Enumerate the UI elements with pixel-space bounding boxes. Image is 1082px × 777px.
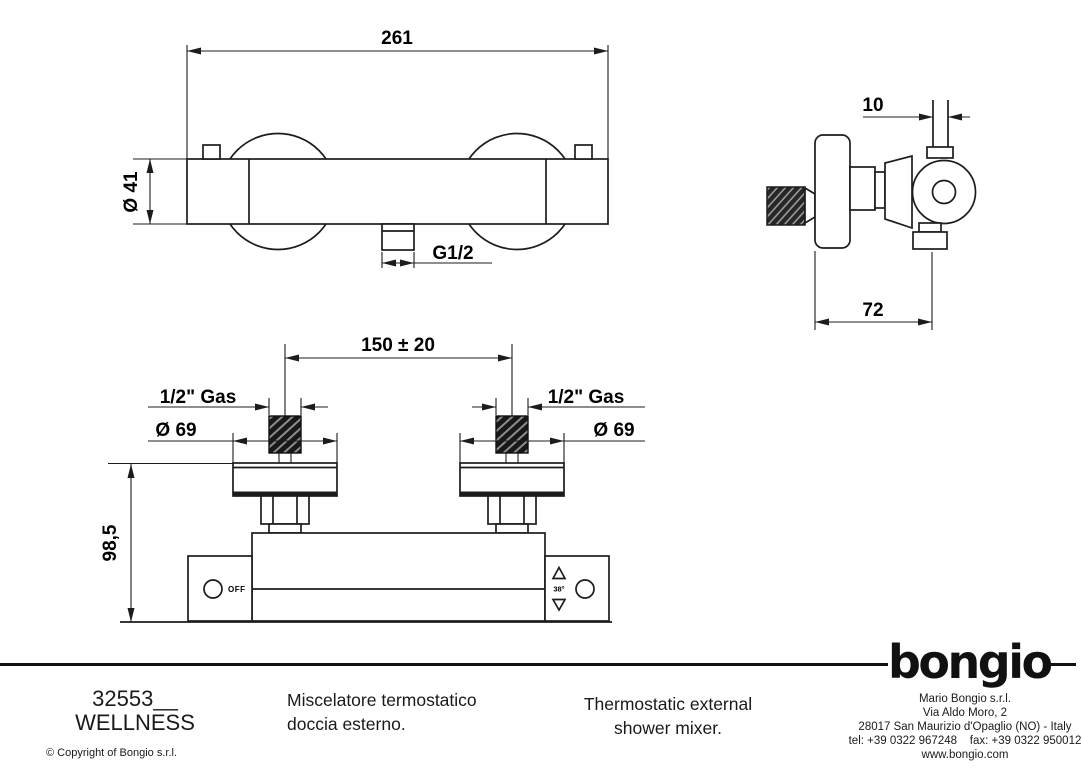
bongio-logo: bongio	[888, 638, 1050, 686]
company-street: Via Aldo Moro, 2	[828, 706, 1082, 720]
dim-69-right: Ø 69	[460, 420, 645, 463]
front-view: 261 Ø 41 G1/2	[121, 28, 608, 268]
dim-72-label: 72	[862, 300, 883, 321]
installation-view: 150 ± 20 1/2" Gas 1/2" Gas	[100, 335, 645, 622]
dim-985-label: 98,5	[100, 524, 121, 561]
side-outlet	[913, 232, 947, 249]
wall-plate-side	[815, 135, 850, 248]
article-code: 32553__	[55, 687, 215, 711]
series-name: WELLNESS	[55, 711, 215, 735]
dim-69-right-label: Ø 69	[593, 420, 634, 441]
thread-inlet-left	[269, 416, 301, 453]
dim-10: 10	[862, 95, 970, 121]
description-italian: Miscelatore termostatico doccia esterno.	[287, 688, 477, 736]
company-website: www.bongio.com	[828, 748, 1082, 762]
escutcheon-right	[460, 463, 564, 497]
escutcheon-left	[233, 463, 337, 497]
titleblock-divider-left	[0, 663, 888, 666]
mixer-bar	[187, 159, 608, 224]
dim-72: 72	[815, 251, 932, 330]
company-name: Mario Bongio s.r.l.	[828, 692, 1082, 706]
temp-handle-block: 38°	[545, 556, 609, 621]
knurled-handle	[767, 187, 805, 225]
description-english: Thermostatic external shower mixer.	[582, 692, 754, 740]
dim-150: 150 ± 20	[285, 335, 512, 362]
bottom-outlet	[382, 224, 414, 250]
dim-diameter-41: Ø 41	[121, 159, 189, 224]
dim-261-label: 261	[381, 28, 413, 49]
copyright-note: © Copyright of Bongio s.r.l.	[46, 747, 177, 759]
thread-inlet-right	[496, 416, 528, 453]
mixer-body-top	[252, 533, 545, 621]
off-handle-block: OFF	[188, 556, 252, 621]
mount-tab-right	[575, 145, 592, 159]
dim-10-label: 10	[862, 95, 883, 116]
body-cone	[885, 156, 912, 228]
company-phone: tel: +39 0322 967248 fax: +39 0322 95001…	[828, 734, 1082, 748]
datasheet-page: 261 Ø 41 G1/2	[0, 0, 1082, 777]
handle-neck	[805, 188, 815, 223]
article-block: 32553__ WELLNESS	[55, 687, 215, 735]
dim-41-label: Ø 41	[121, 171, 142, 213]
dim-69-left-label: Ø 69	[155, 420, 196, 441]
dim-gas-right: 1/2" Gas	[472, 387, 645, 415]
company-city: 28017 San Maurizio d'Opaglio (NO) - Ital…	[828, 720, 1082, 734]
dim-gas-right-label: 1/2" Gas	[548, 387, 625, 408]
dim-261: 261	[187, 28, 608, 159]
dim-150-label: 150 ± 20	[361, 335, 435, 356]
dim-69-left: Ø 69	[148, 420, 337, 463]
dim-g12-label: G1/2	[432, 243, 473, 264]
company-address: Mario Bongio s.r.l. Via Aldo Moro, 2 280…	[828, 692, 1082, 762]
temp-label: 38°	[553, 585, 564, 594]
off-label: OFF	[228, 585, 246, 594]
side-view: 10 72	[767, 95, 976, 330]
mount-tab-left	[203, 145, 220, 159]
dim-gas-left: 1/2" Gas	[148, 387, 328, 415]
dim-gas-left-label: 1/2" Gas	[160, 387, 237, 408]
hex-nut-right	[488, 496, 536, 533]
hex-nut-left	[261, 496, 309, 533]
body-face	[913, 161, 976, 224]
